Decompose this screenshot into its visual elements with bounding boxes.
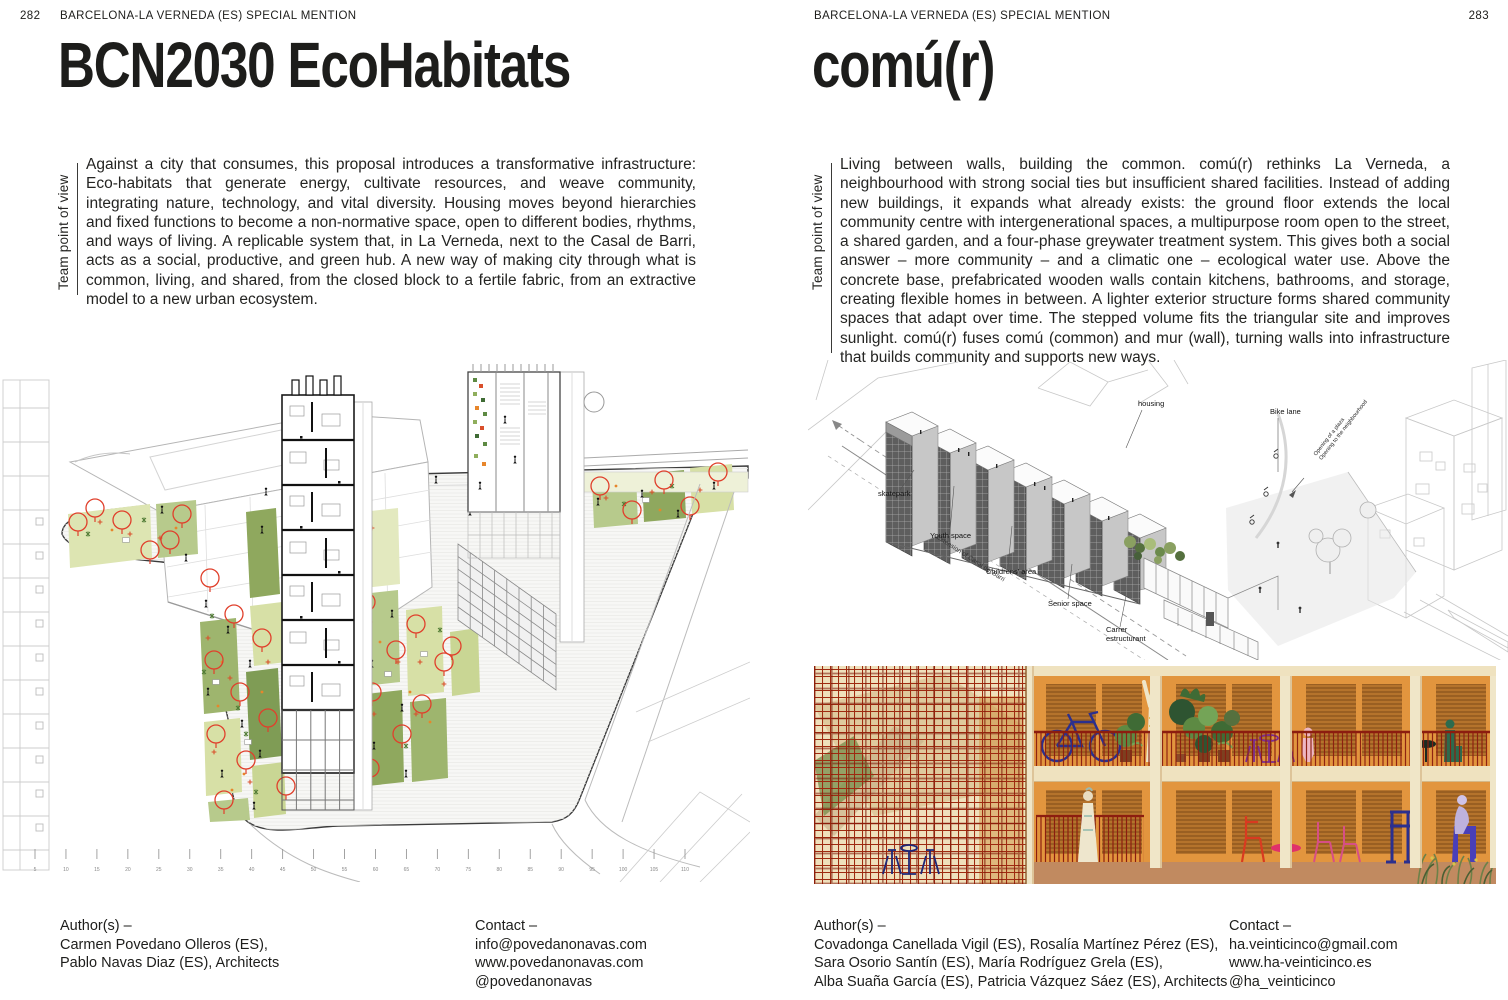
site-plan-illustration <box>0 362 750 882</box>
scale-bar: 5101520253035404550556065707580859095100… <box>0 845 750 881</box>
author-line: Sara Osorio Santín (ES), María Rodríguez… <box>814 954 1227 973</box>
author-line: Pablo Navas Diaz (ES), Architects <box>60 954 279 973</box>
left-page-number: 282 <box>20 10 40 22</box>
right-project-title: comú(r) <box>812 28 994 102</box>
axon-label-skatepark: skatepark <box>878 489 911 498</box>
right-page-number: 283 <box>1469 10 1489 22</box>
left-statement-text: Against a city that consumes, this propo… <box>86 155 696 309</box>
right-authors-block: Author(s) – Covadonga Canellada Vigil (E… <box>814 917 1227 991</box>
svg-text:50: 50 <box>311 867 317 873</box>
right-sidebar-label: Team point of view <box>810 164 825 290</box>
right-running-header: BARCELONA-LA VERNEDA (ES) SPECIAL MENTIO… <box>814 10 1111 22</box>
svg-text:90: 90 <box>558 867 564 873</box>
svg-text:55: 55 <box>342 867 348 873</box>
left-running-header: BARCELONA-LA VERNEDA (ES) SPECIAL MENTIO… <box>60 10 357 22</box>
svg-text:20: 20 <box>125 867 131 873</box>
left-sidebar-label: Team point of view <box>56 164 71 290</box>
svg-text:110: 110 <box>681 867 689 873</box>
render-image <box>814 666 1496 884</box>
axon-label-housing: housing <box>1138 399 1164 408</box>
right-contact-block: Contact – ha.veinticinco@gmail.com www.h… <box>1229 917 1398 991</box>
svg-text:45: 45 <box>280 867 286 873</box>
contact-label: Contact – <box>475 917 647 936</box>
left-contact-block: Contact – info@povedanonavas.com www.pov… <box>475 917 647 991</box>
author-line: Carmen Povedano Olleros (ES), <box>60 936 279 955</box>
background-elevation-strip <box>3 380 49 870</box>
lattice-screen <box>814 666 1026 884</box>
svg-text:105: 105 <box>650 867 659 873</box>
axon-label-senior-space: Senior space <box>1048 599 1092 608</box>
plaza-right <box>1226 472 1416 646</box>
contact-line: @ha_veinticinco <box>1229 973 1398 992</box>
svg-text:100: 100 <box>619 867 628 873</box>
svg-text:75: 75 <box>466 867 472 873</box>
axon-label-note-2: Opening to the neighbourhood <box>1318 399 1368 461</box>
author-line: Alba Suaña García (ES), Patricia Vázquez… <box>814 973 1227 992</box>
contact-line: www.ha-veinticinco.es <box>1229 954 1398 973</box>
contact-line: @povedanonavas <box>475 973 647 992</box>
svg-text:80: 80 <box>497 867 503 873</box>
svg-text:95: 95 <box>589 867 595 873</box>
right-sidebar-rule <box>831 163 832 353</box>
svg-text:10: 10 <box>63 867 69 873</box>
right-statement-text: Living between walls, building the commo… <box>840 155 1450 367</box>
axonometric-illustration: housing Bike lane skatepark Youth space … <box>808 360 1508 660</box>
svg-text:25: 25 <box>156 867 162 873</box>
axon-label-carrer-2: estructurant <box>1106 634 1147 643</box>
left-authors-block: Author(s) – Carmen Povedano Olleros (ES)… <box>60 917 279 973</box>
contact-line: ha.veinticinco@gmail.com <box>1229 936 1398 955</box>
left-project-title: BCN2030 EcoHabitats <box>58 28 570 102</box>
svg-text:85: 85 <box>527 867 533 873</box>
svg-text:70: 70 <box>435 867 441 873</box>
authors-label: Author(s) – <box>60 917 279 936</box>
book-spread: 282 BARCELONA-LA VERNEDA (ES) SPECIAL ME… <box>0 0 1508 1000</box>
axon-label-bike-lane: Bike lane <box>1270 407 1301 416</box>
svg-text:30: 30 <box>187 867 193 873</box>
axon-label-carrer-1: Carrer <box>1106 625 1128 634</box>
section-tower <box>282 376 372 810</box>
floor-slab <box>1024 766 1496 782</box>
railing-top <box>1024 732 1496 766</box>
contact-line: www.povedanonavas.com <box>475 954 647 973</box>
authors-label: Author(s) – <box>814 917 1227 936</box>
svg-text:35: 35 <box>218 867 224 873</box>
contact-line: info@povedanonavas.com <box>475 936 647 955</box>
contact-label: Contact – <box>1229 917 1398 936</box>
author-line: Covadonga Canellada Vigil (ES), Rosalía … <box>814 936 1227 955</box>
svg-text:15: 15 <box>94 867 100 873</box>
svg-text:40: 40 <box>249 867 255 873</box>
svg-text:5: 5 <box>34 867 37 873</box>
left-sidebar-rule <box>77 163 78 295</box>
svg-text:65: 65 <box>404 867 410 873</box>
svg-text:60: 60 <box>373 867 379 873</box>
